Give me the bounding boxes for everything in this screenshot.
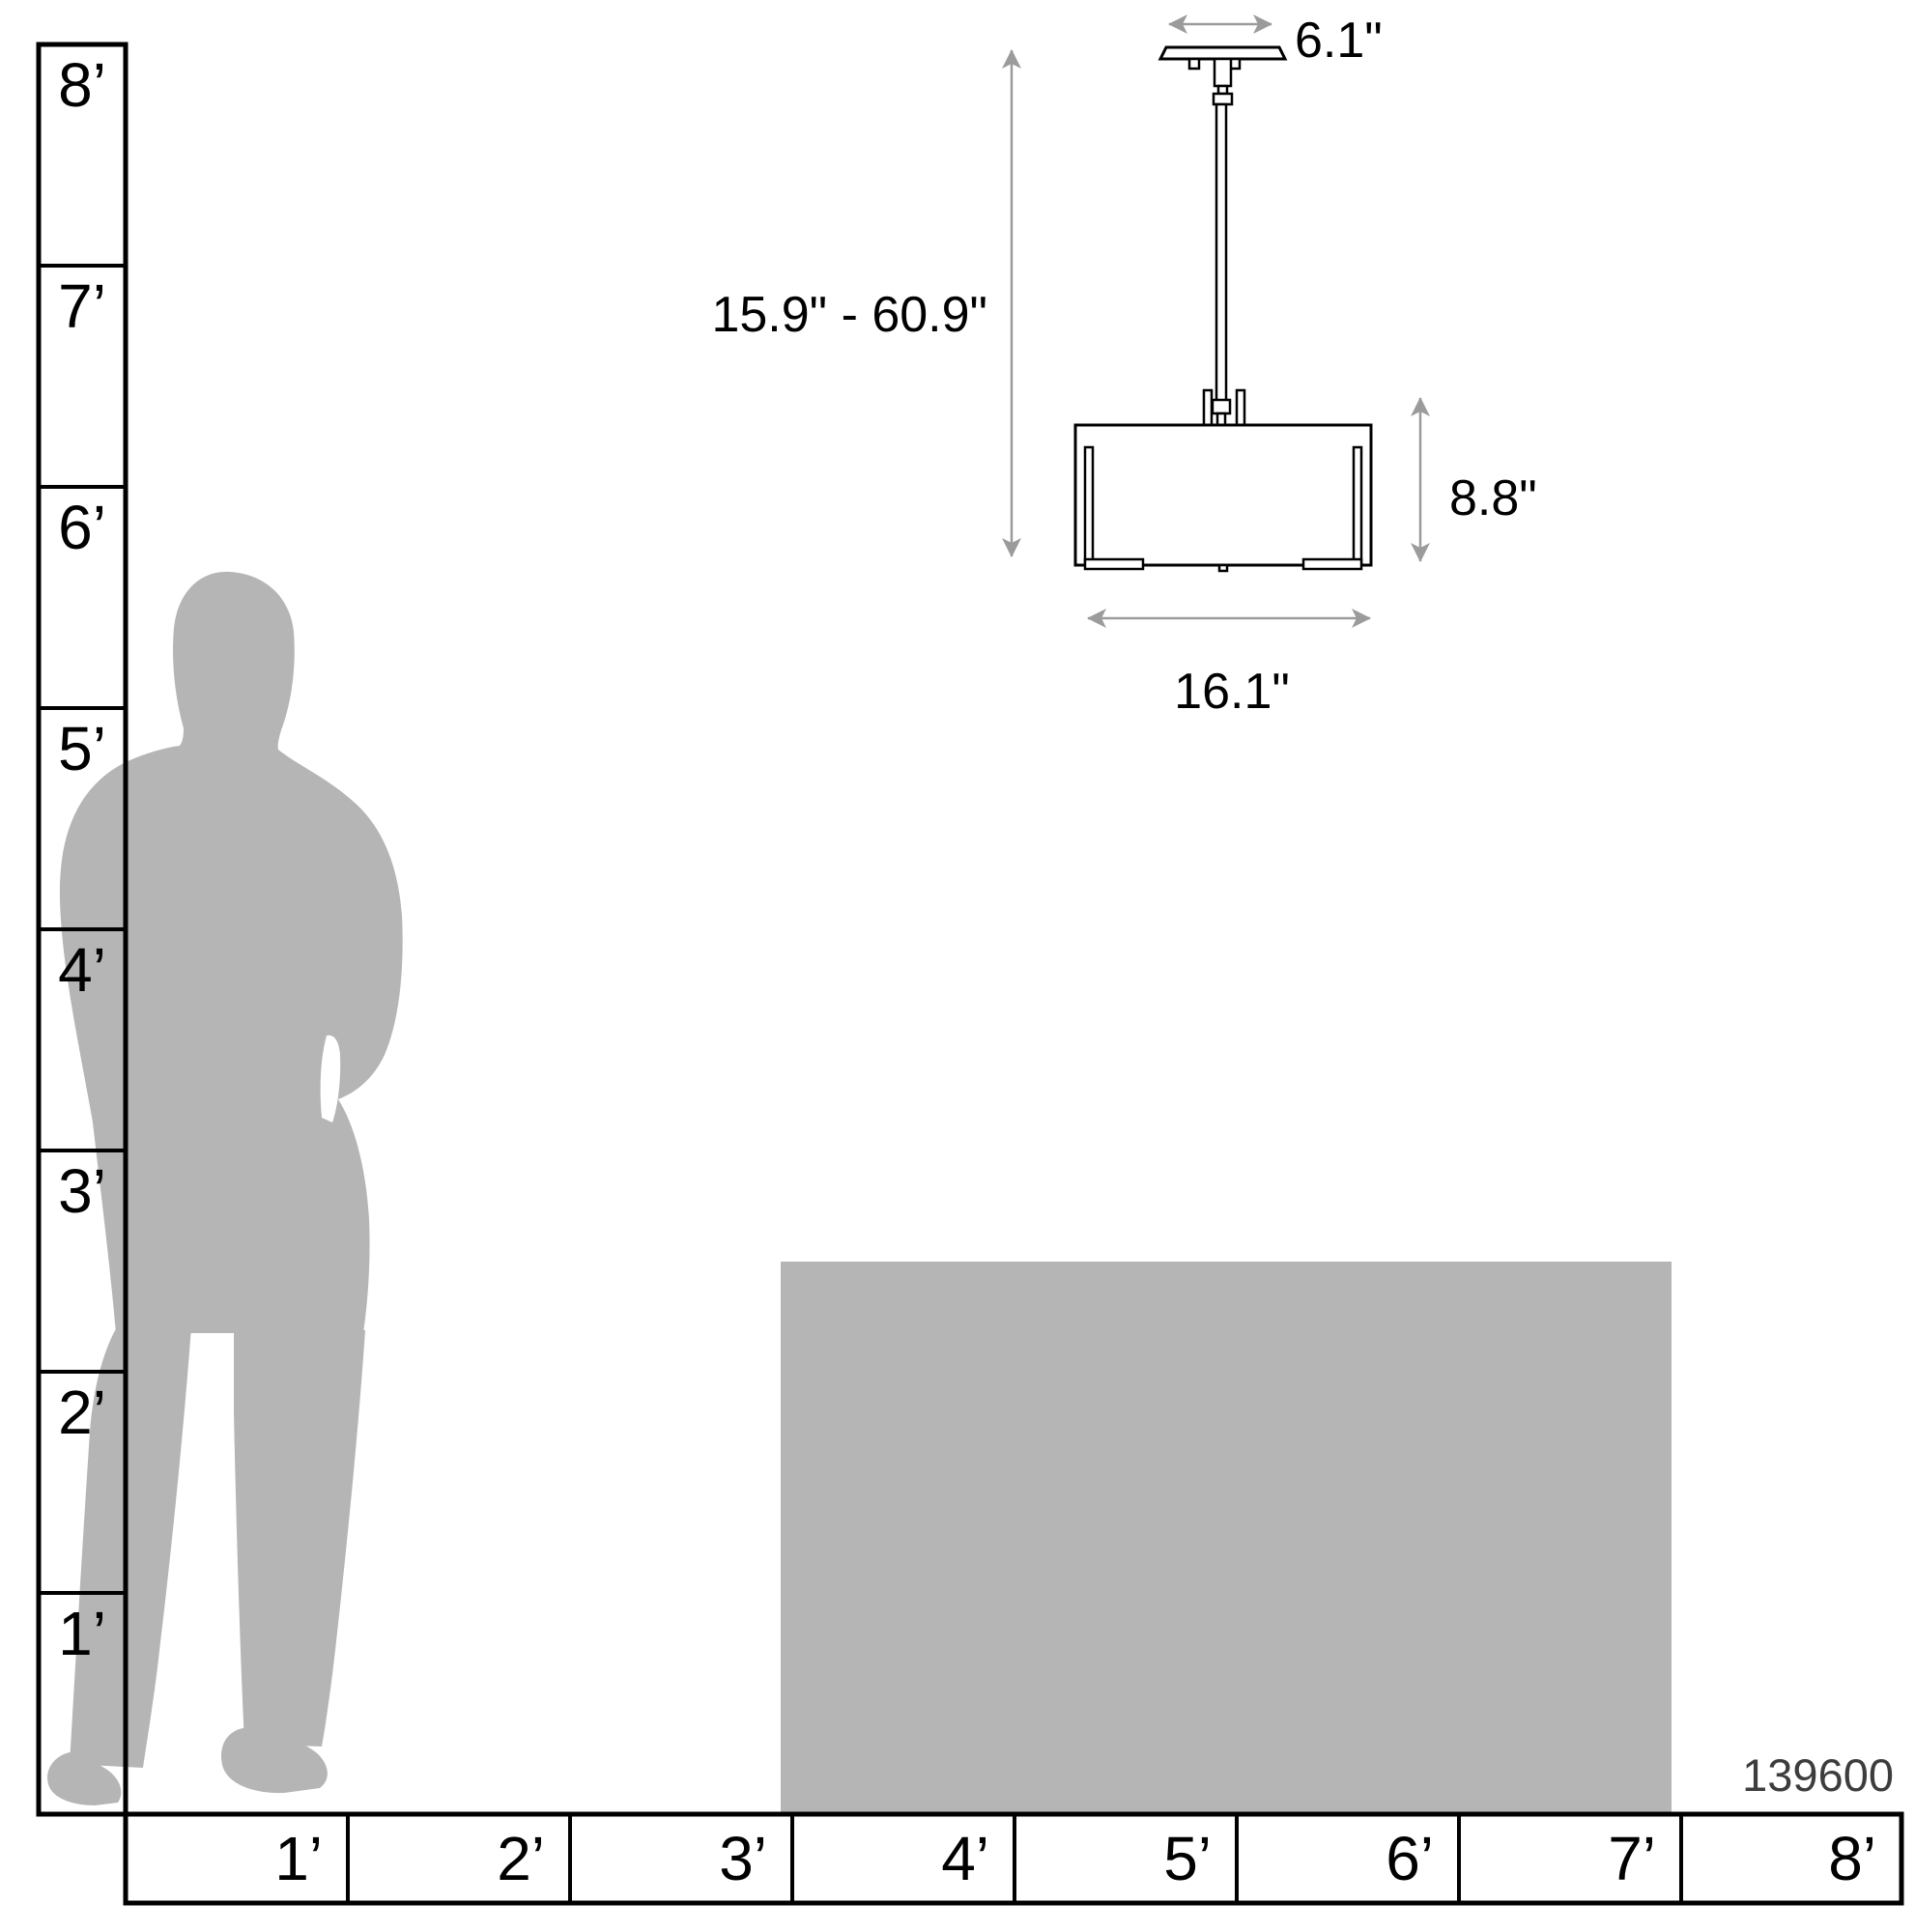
shade-body bbox=[1075, 425, 1371, 565]
vertical-ruler-label-8ft: 8’ bbox=[39, 54, 126, 116]
vertical-ruler-label-1ft: 1’ bbox=[39, 1603, 126, 1664]
horizontal-ruler-label-5ft: 5’ bbox=[1015, 1814, 1237, 1903]
vertical-ruler-label-3ft: 3’ bbox=[39, 1160, 126, 1222]
bracket-left-foot bbox=[1085, 559, 1143, 569]
height-range-dimension: 15.9" - 60.9" bbox=[599, 286, 987, 344]
horizontal-ruler-label-8ft: 8’ bbox=[1681, 1814, 1901, 1903]
stem-tip bbox=[1217, 413, 1225, 425]
swivel-collar bbox=[1214, 94, 1232, 104]
shade-width-dimension: 16.1" bbox=[1111, 663, 1353, 721]
vertical-ruler-label-7ft: 7’ bbox=[39, 275, 126, 337]
canopy-screw-left bbox=[1189, 59, 1199, 69]
horizontal-ruler-label-1ft: 1’ bbox=[126, 1814, 348, 1903]
shade-finial bbox=[1219, 565, 1227, 571]
canopy-width-dimension: 6.1" bbox=[1295, 12, 1383, 70]
size-scale-diagram: 8’ 7’ 6’ 5’ 4’ 3’ 2’ 1’ 1’ 2’ 3’ 4’ 5’ 6… bbox=[0, 0, 1915, 1932]
horizontal-ruler-label-2ft: 2’ bbox=[348, 1814, 570, 1903]
canopy-plate bbox=[1160, 47, 1285, 59]
swivel-block bbox=[1215, 59, 1231, 86]
shade-prong-left bbox=[1204, 390, 1212, 426]
vertical-ruler-label-5ft: 5’ bbox=[39, 718, 126, 780]
man-right-leg bbox=[234, 1327, 365, 1747]
shade-height-dimension: 8.8" bbox=[1449, 469, 1537, 527]
bracket-right-foot bbox=[1303, 559, 1361, 569]
bracket-right-bar bbox=[1354, 447, 1361, 564]
stem-connector bbox=[1213, 400, 1230, 413]
vertical-ruler-label-6ft: 6’ bbox=[39, 497, 126, 558]
vertical-ruler-label-2ft: 2’ bbox=[39, 1381, 126, 1443]
horizontal-ruler-label-4ft: 4’ bbox=[792, 1814, 1015, 1903]
shade-prong-right bbox=[1237, 390, 1244, 426]
bracket-left-bar bbox=[1085, 447, 1093, 564]
pendant-drawing bbox=[1075, 47, 1371, 571]
stem-rod bbox=[1216, 104, 1226, 412]
vertical-ruler-label-4ft: 4’ bbox=[39, 939, 126, 1001]
horizontal-ruler-label-7ft: 7’ bbox=[1459, 1814, 1681, 1903]
horizontal-ruler-label-6ft: 6’ bbox=[1237, 1814, 1459, 1903]
counter-block bbox=[781, 1262, 1672, 1814]
product-code: 139600 bbox=[1585, 1750, 1894, 1801]
horizontal-ruler-label-3ft: 3’ bbox=[570, 1814, 792, 1903]
